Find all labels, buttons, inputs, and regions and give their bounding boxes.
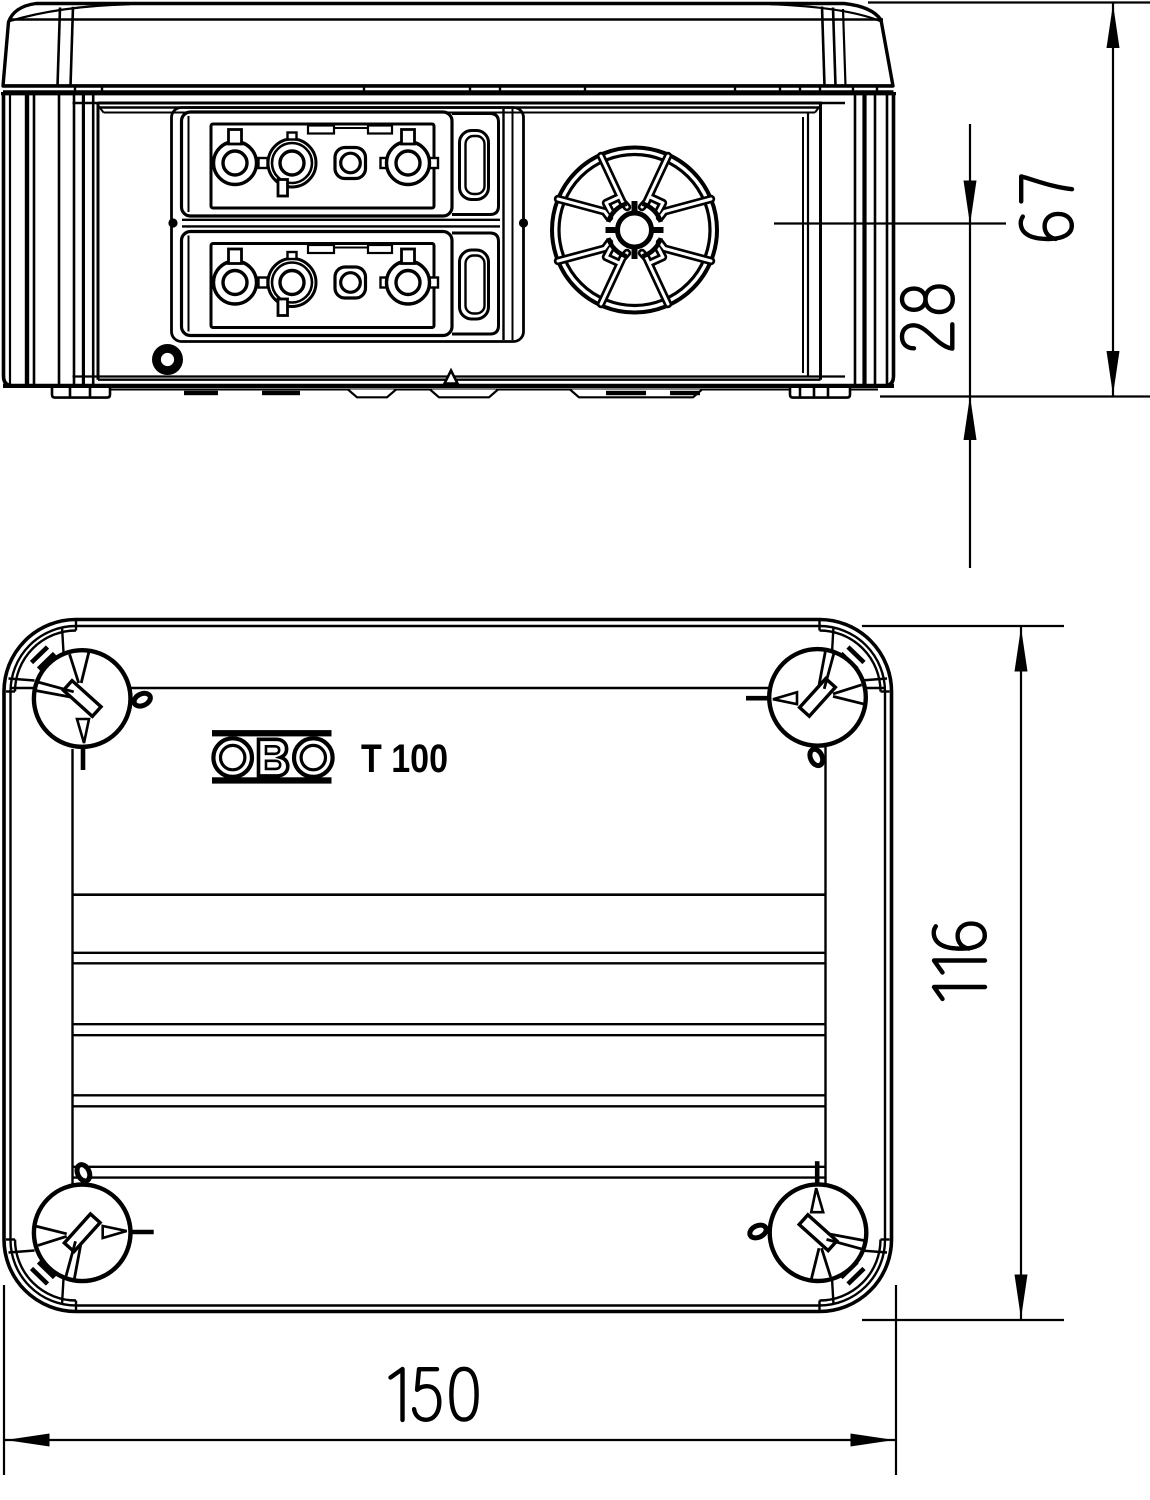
svg-text:T 100: T 100: [361, 737, 448, 781]
